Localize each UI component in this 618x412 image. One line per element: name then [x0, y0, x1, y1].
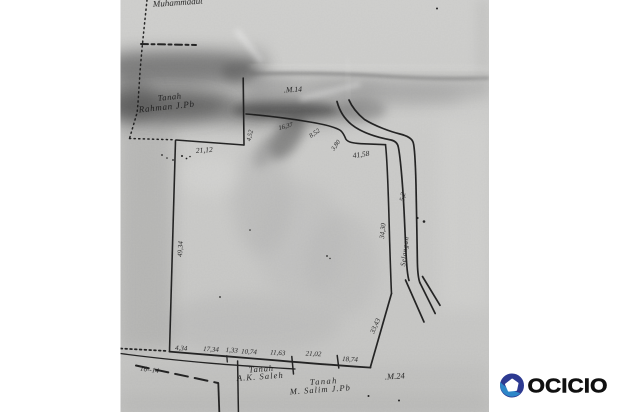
svg-text:18,74: 18,74 [342, 355, 359, 364]
svg-text:10,74: 10,74 [241, 348, 258, 357]
svg-text:17,34: 17,34 [203, 345, 220, 354]
svg-text:.M.24: .M.24 [385, 370, 406, 381]
svg-text:OCICIO: OCICIO [528, 375, 608, 398]
svg-text:1,33: 1,33 [225, 346, 238, 355]
svg-text:21,12: 21,12 [196, 145, 214, 155]
svg-text:21,02: 21,02 [305, 350, 322, 359]
svg-text:11,63: 11,63 [270, 349, 286, 358]
svg-text:4,34: 4,34 [175, 344, 188, 353]
svg-text:49,34: 49,34 [176, 240, 185, 257]
svg-text:.M.14: .M.14 [284, 85, 303, 95]
